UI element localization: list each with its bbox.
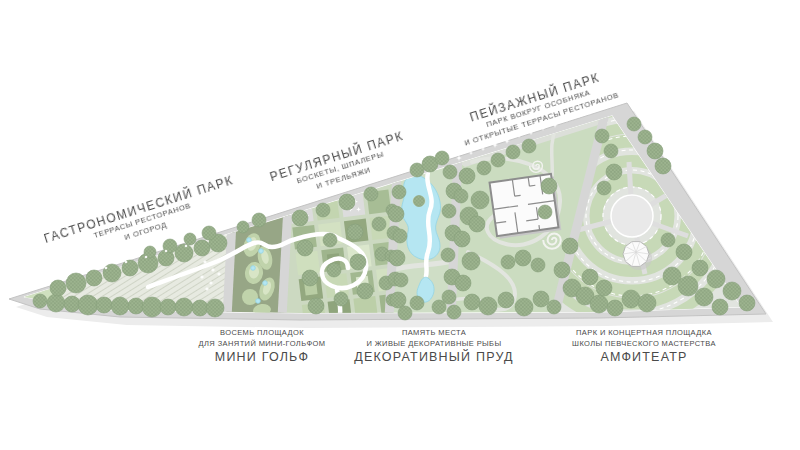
feature-caption: И ЖИВЫЕ ДЕКОРАТИВНЫЕ РЫБЫ	[319, 338, 549, 349]
feature-label-amphitheater: ПАРК И КОНЦЕРТНАЯ ПЛОЩАДКА ШКОЛЫ ПЕВЧЕСК…	[529, 327, 759, 364]
feature-caption: ШКОЛЫ ПЕВЧЕСКОГО МАСТЕРСТВА	[529, 338, 759, 349]
feature-name: ДЕКОРАТИВНЫЙ ПРУД	[319, 350, 549, 364]
feature-caption: ПАМЯТЬ МЕСТА	[319, 327, 549, 338]
amphitheater-stage	[611, 195, 653, 237]
feature-label-pond: ПАМЯТЬ МЕСТА И ЖИВЫЕ ДЕКОРАТИВНЫЕ РЫБЫ Д…	[319, 327, 549, 364]
park-master-plan-screenshot: ГАСТРОНОМИЧЕСКИЙ ПАРК ТЕРРАСЫ РЕСТОРАНОВ…	[0, 0, 800, 450]
feature-name: АМФИТЕАТР	[529, 350, 759, 364]
feature-caption: ПАРК И КОНЦЕРТНАЯ ПЛОЩАДКА	[529, 327, 759, 338]
